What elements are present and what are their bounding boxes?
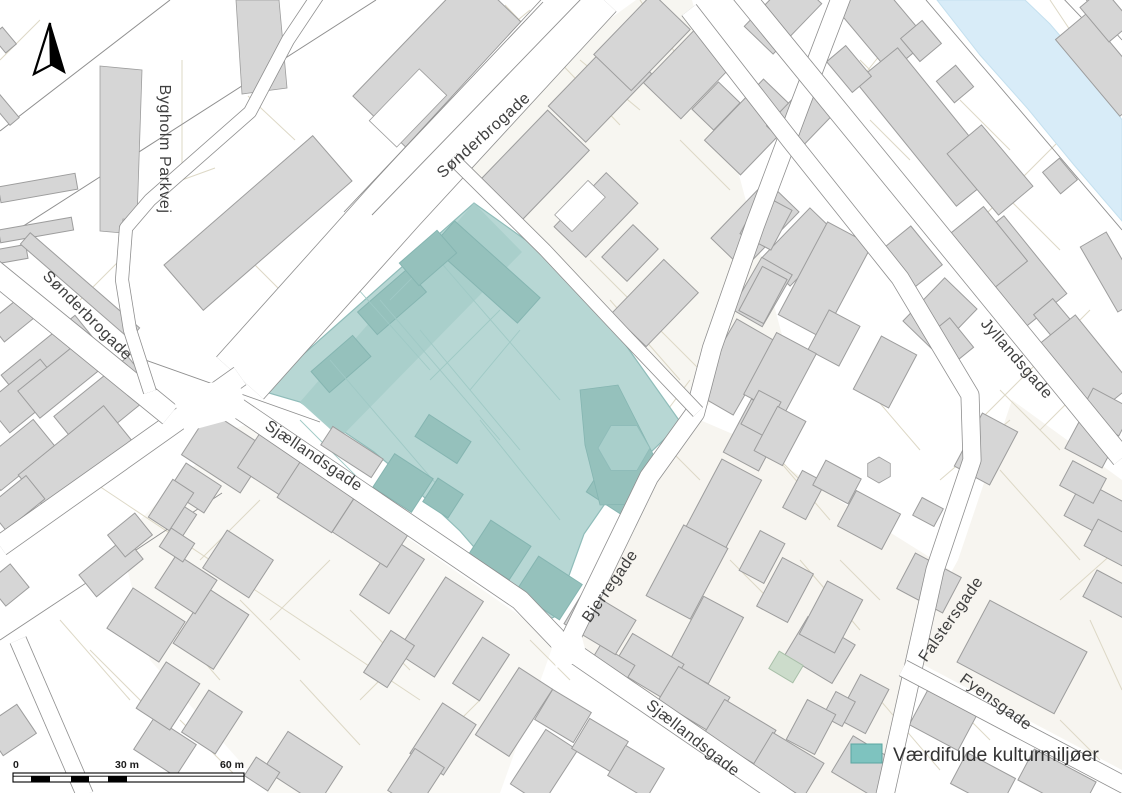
svg-text:Bygholm Parkvej: Bygholm Parkvej (156, 84, 173, 213)
svg-text:60 m: 60 m (220, 759, 244, 771)
svg-text:0: 0 (13, 759, 19, 771)
svg-text:30 m: 30 m (115, 759, 139, 771)
svg-text:Værdifulde kulturmiljøer: Værdifulde kulturmiljøer (893, 744, 1099, 766)
